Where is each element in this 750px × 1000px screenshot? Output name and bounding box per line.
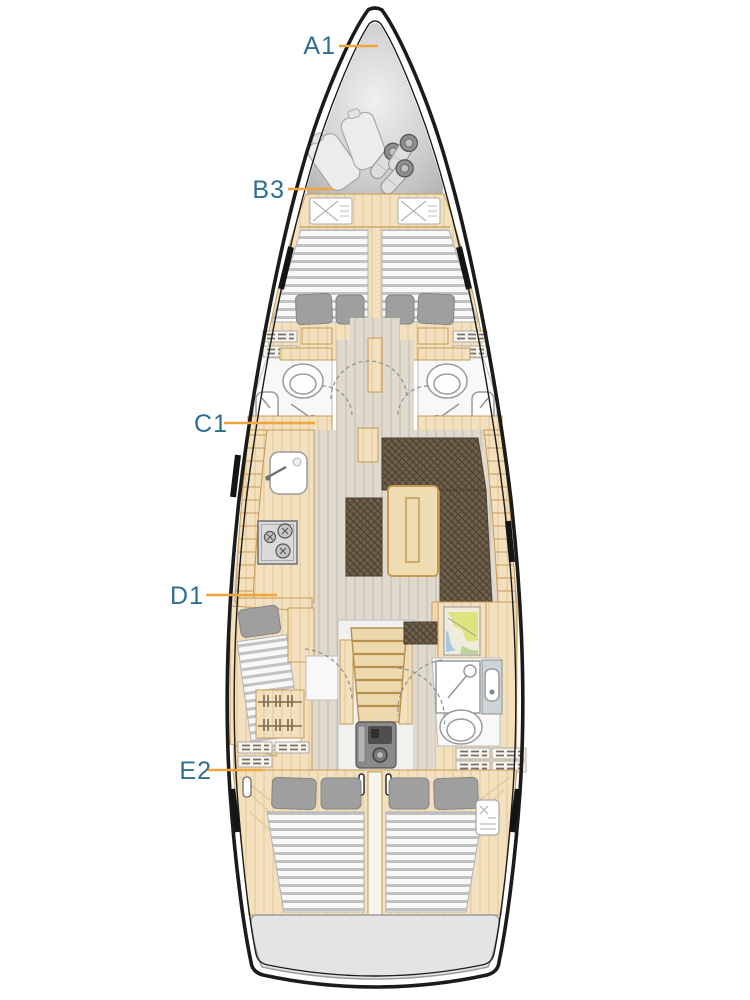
pillow xyxy=(295,293,333,325)
salon-sofa xyxy=(382,438,486,490)
engine xyxy=(356,722,396,768)
companionway xyxy=(338,620,414,770)
toilet-bowl xyxy=(434,374,460,394)
shower-head xyxy=(464,665,476,677)
salon-bench xyxy=(346,498,382,576)
pillow xyxy=(321,778,361,809)
pillow xyxy=(389,778,429,809)
berth-step xyxy=(302,328,332,344)
latch xyxy=(243,777,251,797)
shelf-rack xyxy=(256,690,304,738)
aft-head xyxy=(432,658,502,746)
salon-sofa xyxy=(440,490,492,602)
label-c1: C1 xyxy=(194,410,228,438)
pillow xyxy=(238,605,282,638)
pillow xyxy=(271,777,316,810)
toilet-bowl xyxy=(447,719,475,741)
label-e2: E2 xyxy=(179,757,212,785)
aft-cabin-port xyxy=(267,777,364,912)
salon xyxy=(232,428,518,604)
locker-vent xyxy=(238,756,272,767)
nav-seat xyxy=(404,622,438,644)
yacht-deck-plan: A1 B3 C1 D1 E2 xyxy=(0,0,750,1000)
nav-station xyxy=(404,602,526,772)
locker-vent xyxy=(263,331,297,342)
locker-vent xyxy=(275,742,309,753)
wardrobe xyxy=(288,608,314,662)
locker-vent xyxy=(238,742,272,753)
deck-hatch xyxy=(398,198,440,224)
label-b3: B3 xyxy=(252,176,285,204)
aft-cabins xyxy=(233,770,517,915)
locker-vent xyxy=(456,748,490,759)
cabin-divider xyxy=(368,772,382,915)
berth-step xyxy=(418,328,448,344)
deck-hatch xyxy=(310,198,352,224)
pillow xyxy=(433,777,478,810)
toilet-bowl xyxy=(290,374,316,394)
label-d1: D1 xyxy=(170,582,204,610)
washbasin xyxy=(485,669,499,701)
nautical-chart xyxy=(444,607,480,655)
label-a1: A1 xyxy=(303,32,336,60)
life-jacket-locker xyxy=(476,800,499,835)
locker-vent xyxy=(453,331,487,342)
aft-cabin-starboard xyxy=(386,777,483,912)
galley-stove xyxy=(258,521,297,564)
double-berth-mattress xyxy=(267,812,364,912)
double-berth-mattress xyxy=(386,812,483,912)
door-post xyxy=(368,338,382,392)
pillow xyxy=(417,293,455,325)
